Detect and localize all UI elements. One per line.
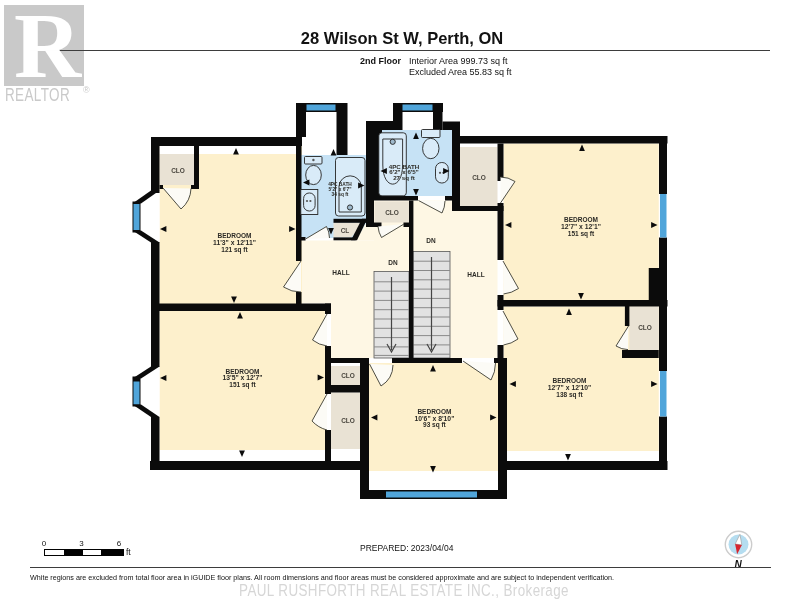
svg-text:28 Wilson St W, Perth, ON: 28 Wilson St W, Perth, ON: [301, 29, 503, 47]
svg-text:CL: CL: [341, 227, 350, 234]
svg-text:138 sq ft: 138 sq ft: [556, 391, 583, 399]
svg-text:151 sq ft: 151 sq ft: [229, 381, 256, 389]
svg-text:121 sq ft: 121 sq ft: [221, 246, 248, 254]
svg-text:REALTOR: REALTOR: [5, 85, 70, 104]
svg-text:ft: ft: [126, 547, 131, 557]
svg-text:CLO: CLO: [341, 417, 355, 424]
svg-text:DN: DN: [426, 237, 436, 244]
svg-text:CLO: CLO: [171, 167, 185, 174]
svg-text:2nd Floor: 2nd Floor: [360, 56, 401, 66]
svg-text:6: 6: [117, 539, 122, 548]
svg-text:HALL: HALL: [467, 271, 484, 278]
svg-text:Interior Area 999.73 sq ft: Interior Area 999.73 sq ft: [409, 56, 508, 66]
svg-text:Excluded Area 55.83 sq ft: Excluded Area 55.83 sq ft: [409, 67, 512, 77]
svg-text:CLO: CLO: [385, 209, 399, 216]
svg-text:PAUL RUSHFORTH REAL ESTATE INC: PAUL RUSHFORTH REAL ESTATE INC., Brokera…: [239, 580, 569, 599]
svg-text:CLO: CLO: [341, 372, 355, 379]
svg-text:151 sq ft: 151 sq ft: [568, 230, 595, 238]
svg-text:HALL: HALL: [332, 269, 349, 276]
svg-text:34 sq ft: 34 sq ft: [332, 192, 349, 197]
svg-text:CLO: CLO: [638, 324, 652, 331]
svg-text:®: ®: [83, 85, 90, 95]
svg-text:27 sq ft: 27 sq ft: [393, 174, 415, 181]
svg-text:CLO: CLO: [472, 174, 486, 181]
svg-text:R: R: [14, 0, 82, 97]
svg-text:0: 0: [42, 539, 47, 548]
svg-text:DN: DN: [388, 259, 398, 266]
svg-text:3: 3: [79, 539, 84, 548]
svg-text:93 sq ft: 93 sq ft: [423, 421, 447, 429]
svg-text:PREPARED: 2023/04/04: PREPARED: 2023/04/04: [360, 543, 454, 553]
